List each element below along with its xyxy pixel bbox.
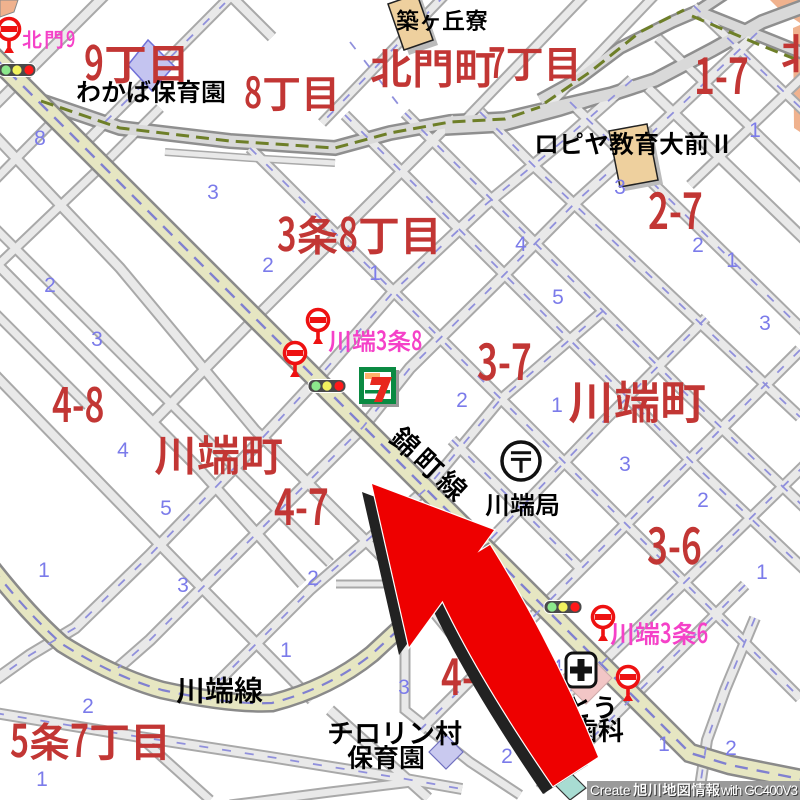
- svg-text:1: 1: [658, 733, 670, 756]
- svg-text:2: 2: [82, 695, 94, 718]
- svg-text:4: 4: [515, 233, 527, 256]
- svg-text:with GC400V3: with GC400V3: [720, 783, 798, 798]
- svg-text:2: 2: [262, 254, 274, 277]
- svg-text:1: 1: [551, 394, 563, 417]
- svg-text:2: 2: [44, 274, 56, 297]
- svg-text:5: 5: [160, 497, 172, 520]
- svg-text:1: 1: [36, 768, 48, 791]
- svg-text:8: 8: [34, 127, 46, 150]
- svg-text:2: 2: [692, 234, 704, 257]
- svg-text:1: 1: [38, 559, 50, 582]
- svg-text:2: 2: [697, 489, 709, 512]
- svg-text:1: 1: [369, 262, 381, 285]
- svg-text:1: 1: [726, 249, 738, 272]
- svg-text:5: 5: [552, 286, 564, 309]
- svg-text:2: 2: [456, 389, 468, 412]
- svg-text:3: 3: [398, 676, 410, 699]
- svg-text:3: 3: [619, 453, 631, 476]
- svg-text:1: 1: [749, 119, 761, 142]
- svg-text:1: 1: [280, 639, 292, 662]
- svg-text:2: 2: [501, 745, 513, 768]
- svg-text:1: 1: [756, 561, 768, 584]
- svg-text:3: 3: [759, 312, 771, 335]
- svg-text:3: 3: [177, 574, 189, 597]
- svg-text:4: 4: [117, 439, 129, 462]
- svg-text:3: 3: [207, 181, 219, 204]
- svg-text:3: 3: [91, 328, 103, 351]
- svg-text:3: 3: [614, 176, 626, 199]
- svg-text:2: 2: [307, 567, 319, 590]
- svg-text:2: 2: [725, 737, 737, 760]
- svg-text:Create: Create: [590, 783, 631, 798]
